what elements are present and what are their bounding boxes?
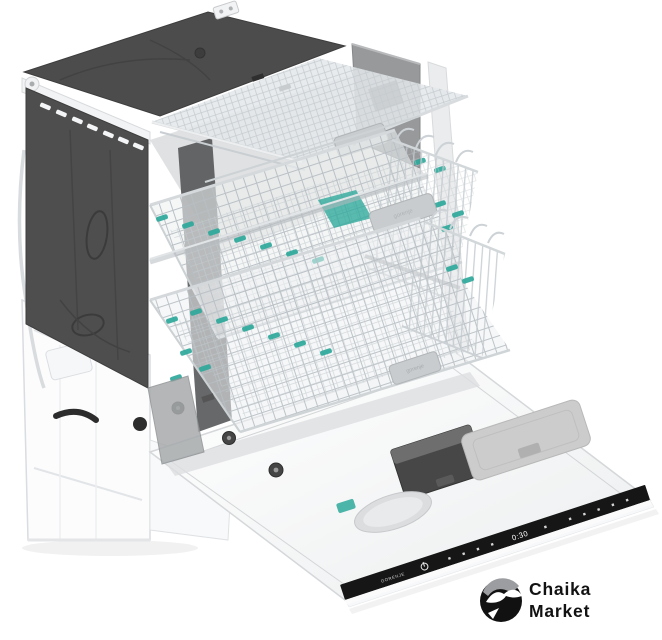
logo-text-line1: Chaika [529,579,591,599]
product-image: gorenje go [0,0,662,640]
chaika-logo: Chaika Market [480,578,591,622]
logo-text-line2: Market [529,601,590,621]
